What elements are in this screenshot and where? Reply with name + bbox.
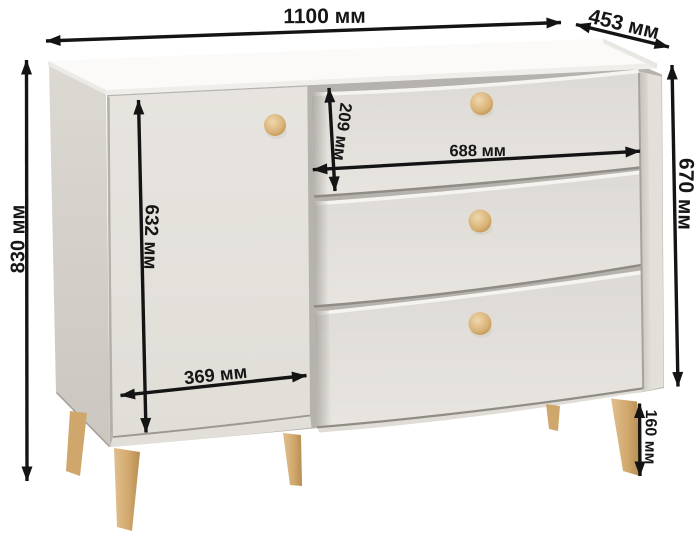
svg-text:670 мм: 670 мм [673, 158, 697, 230]
svg-text:632 мм: 632 мм [139, 204, 162, 270]
svg-text:830 мм: 830 мм [8, 205, 30, 274]
svg-text:1100 мм: 1100 мм [283, 5, 366, 29]
svg-text:160 мм: 160 мм [641, 409, 659, 464]
svg-text:688 мм: 688 мм [449, 142, 506, 160]
